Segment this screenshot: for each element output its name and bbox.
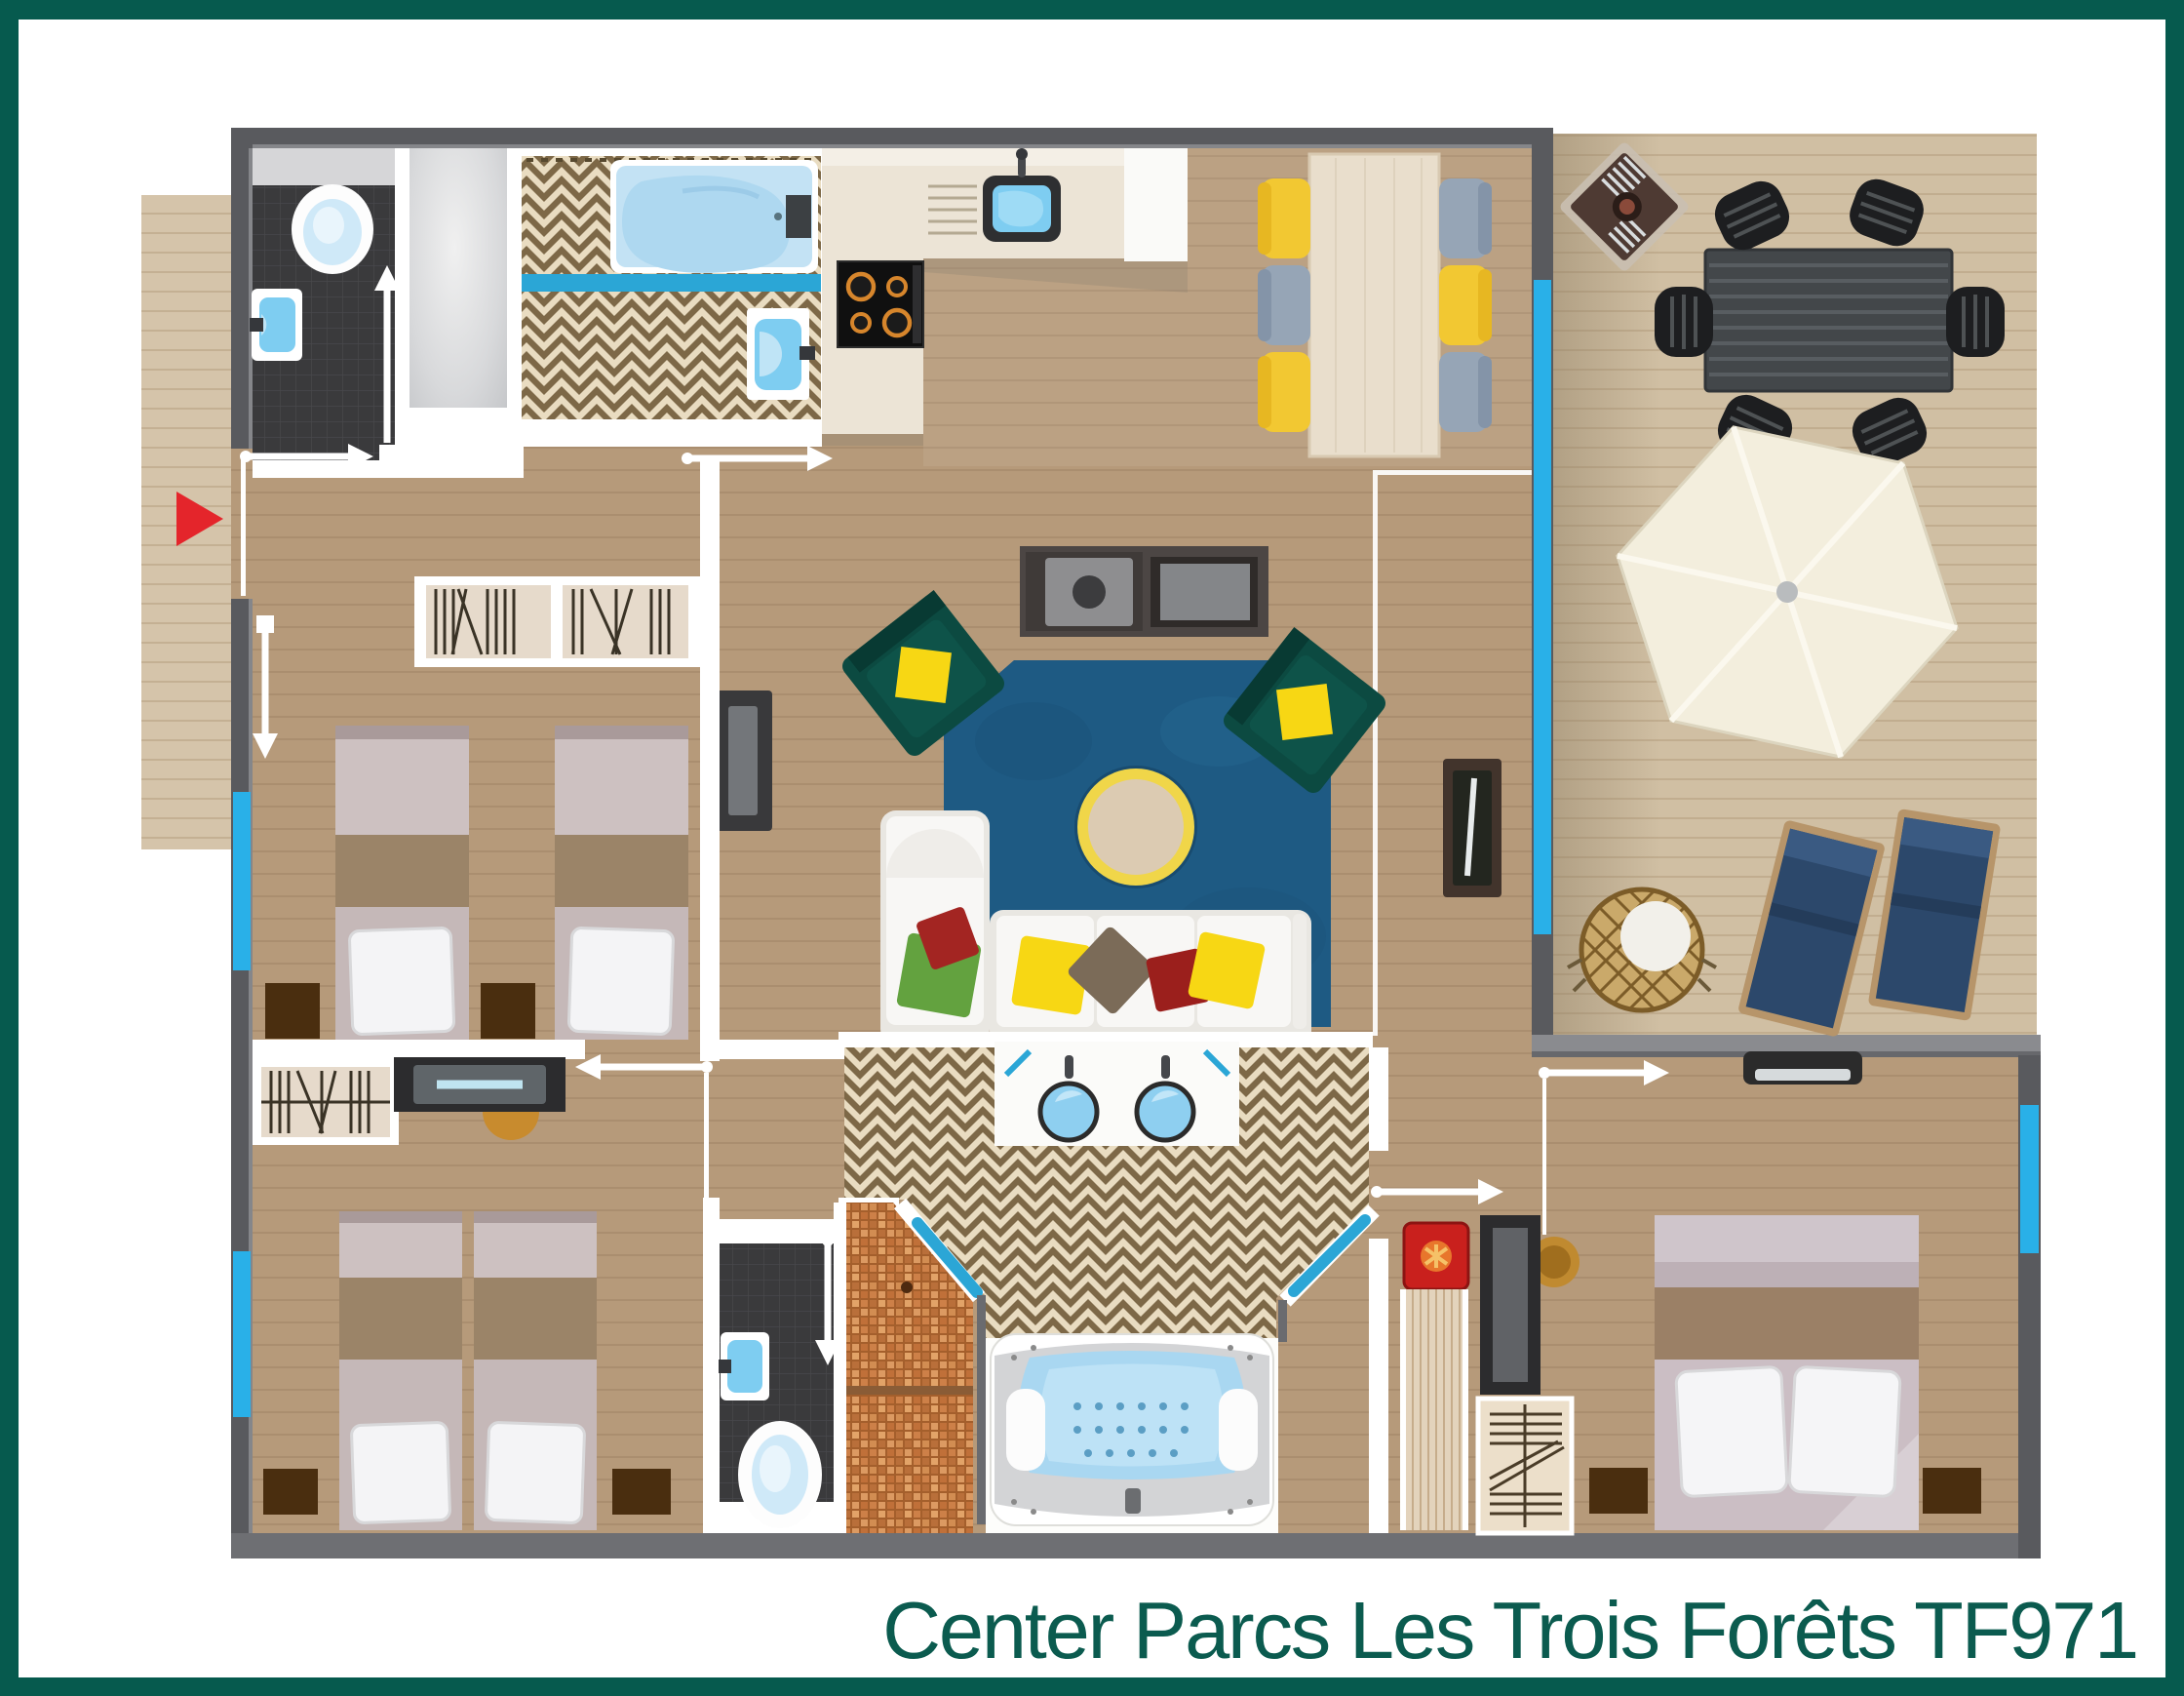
svg-text:Center Parcs Les Trois Forêts: Center Parcs Les Trois Forêts TF971 bbox=[882, 1585, 2137, 1676]
